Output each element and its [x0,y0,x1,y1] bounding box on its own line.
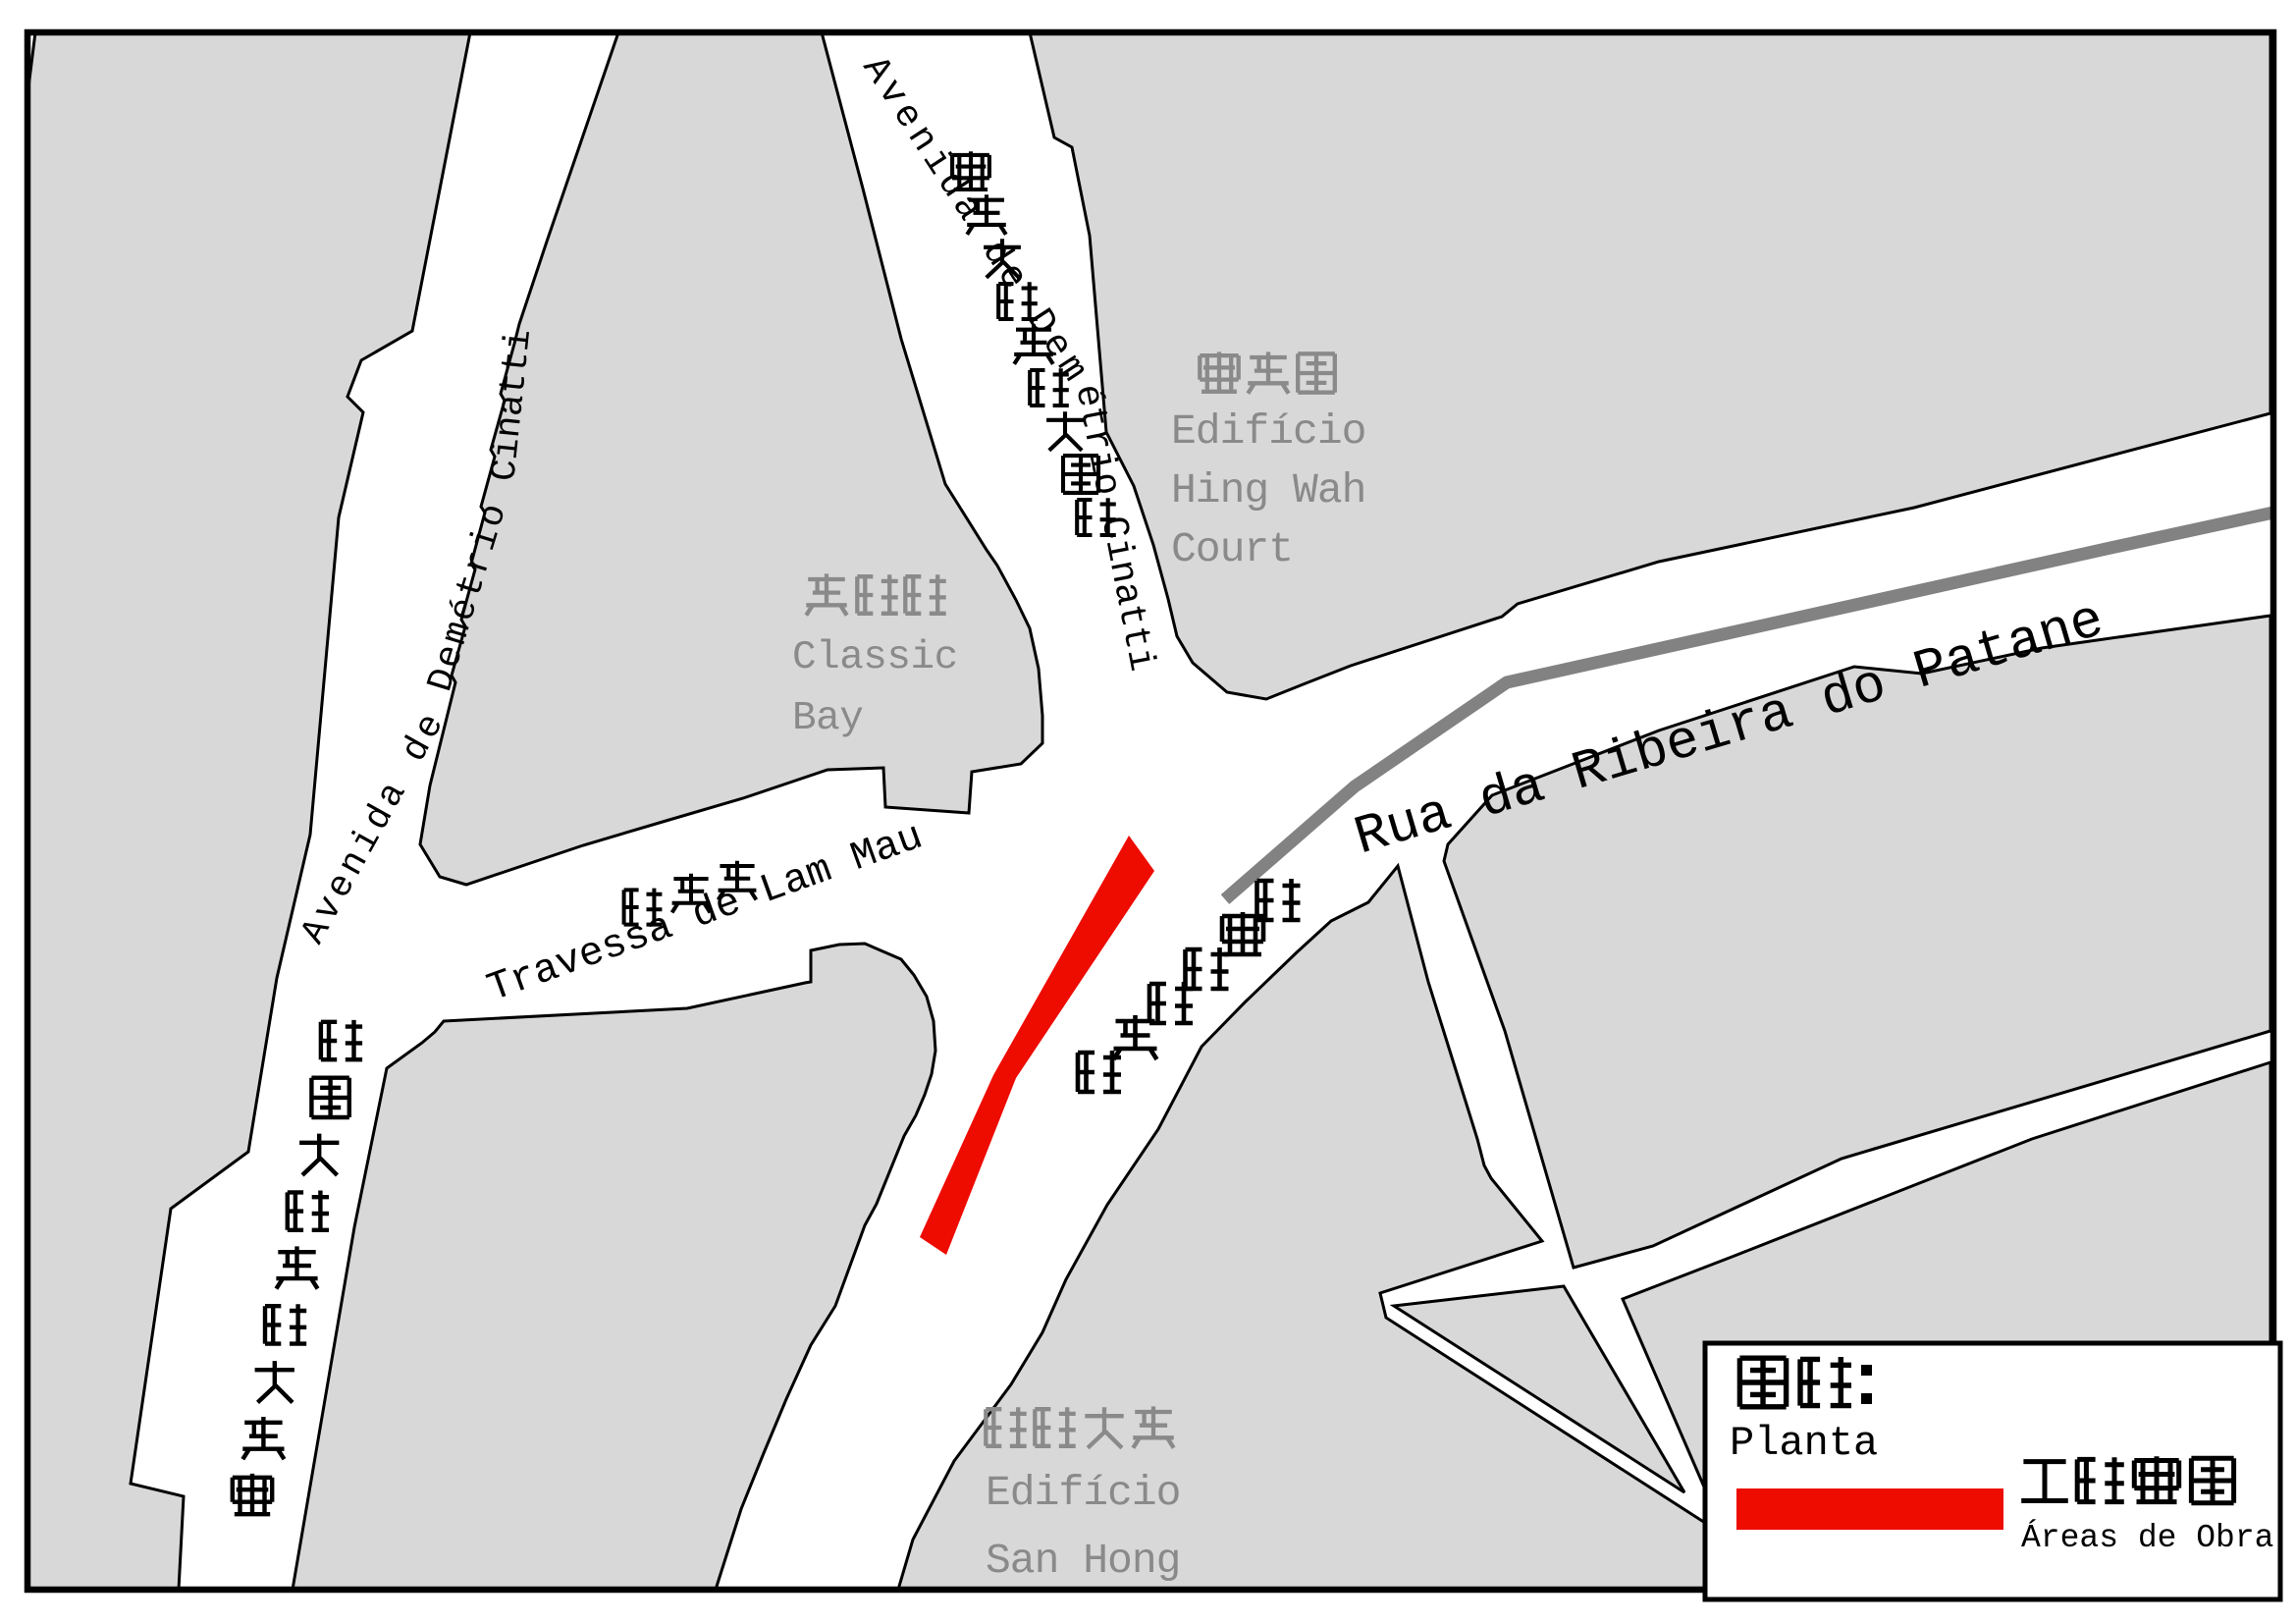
svg-text:Court: Court [1171,525,1293,573]
svg-text:San Hong: San Hong [986,1537,1180,1585]
svg-text:Planta: Planta [1730,1420,1878,1467]
svg-text:Edifício: Edifício [1171,407,1365,456]
svg-text:Bay: Bay [792,696,863,741]
svg-text:Hing Wah: Hing Wah [1171,466,1365,514]
svg-text:Edifício: Edifício [986,1469,1180,1517]
svg-text:Classic: Classic [792,635,958,680]
svg-text:Áreas de Obra: Áreas de Obra [2021,1519,2273,1556]
